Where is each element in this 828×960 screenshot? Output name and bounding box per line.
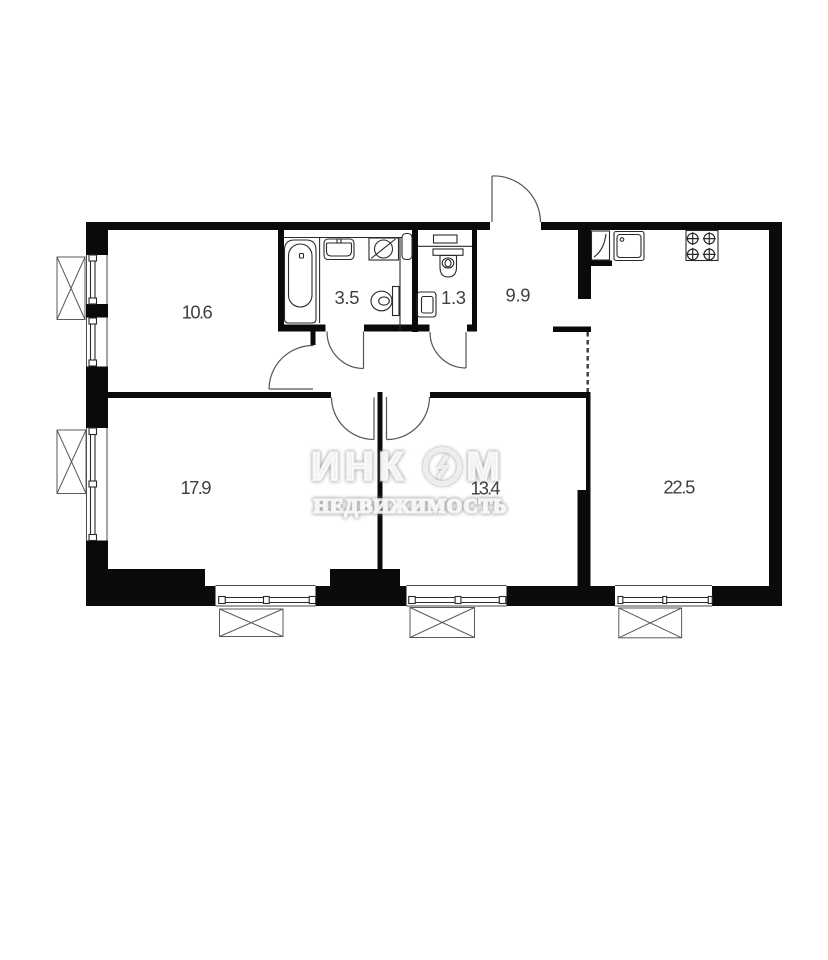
svg-text:9.9: 9.9	[506, 285, 531, 306]
svg-text:17.9: 17.9	[181, 477, 212, 498]
svg-text:3.5: 3.5	[335, 287, 360, 308]
svg-text:13.4: 13.4	[471, 478, 501, 499]
svg-text:10.6: 10.6	[182, 302, 213, 323]
svg-text:1.3: 1.3	[441, 287, 466, 308]
svg-text:22.5: 22.5	[663, 476, 695, 497]
